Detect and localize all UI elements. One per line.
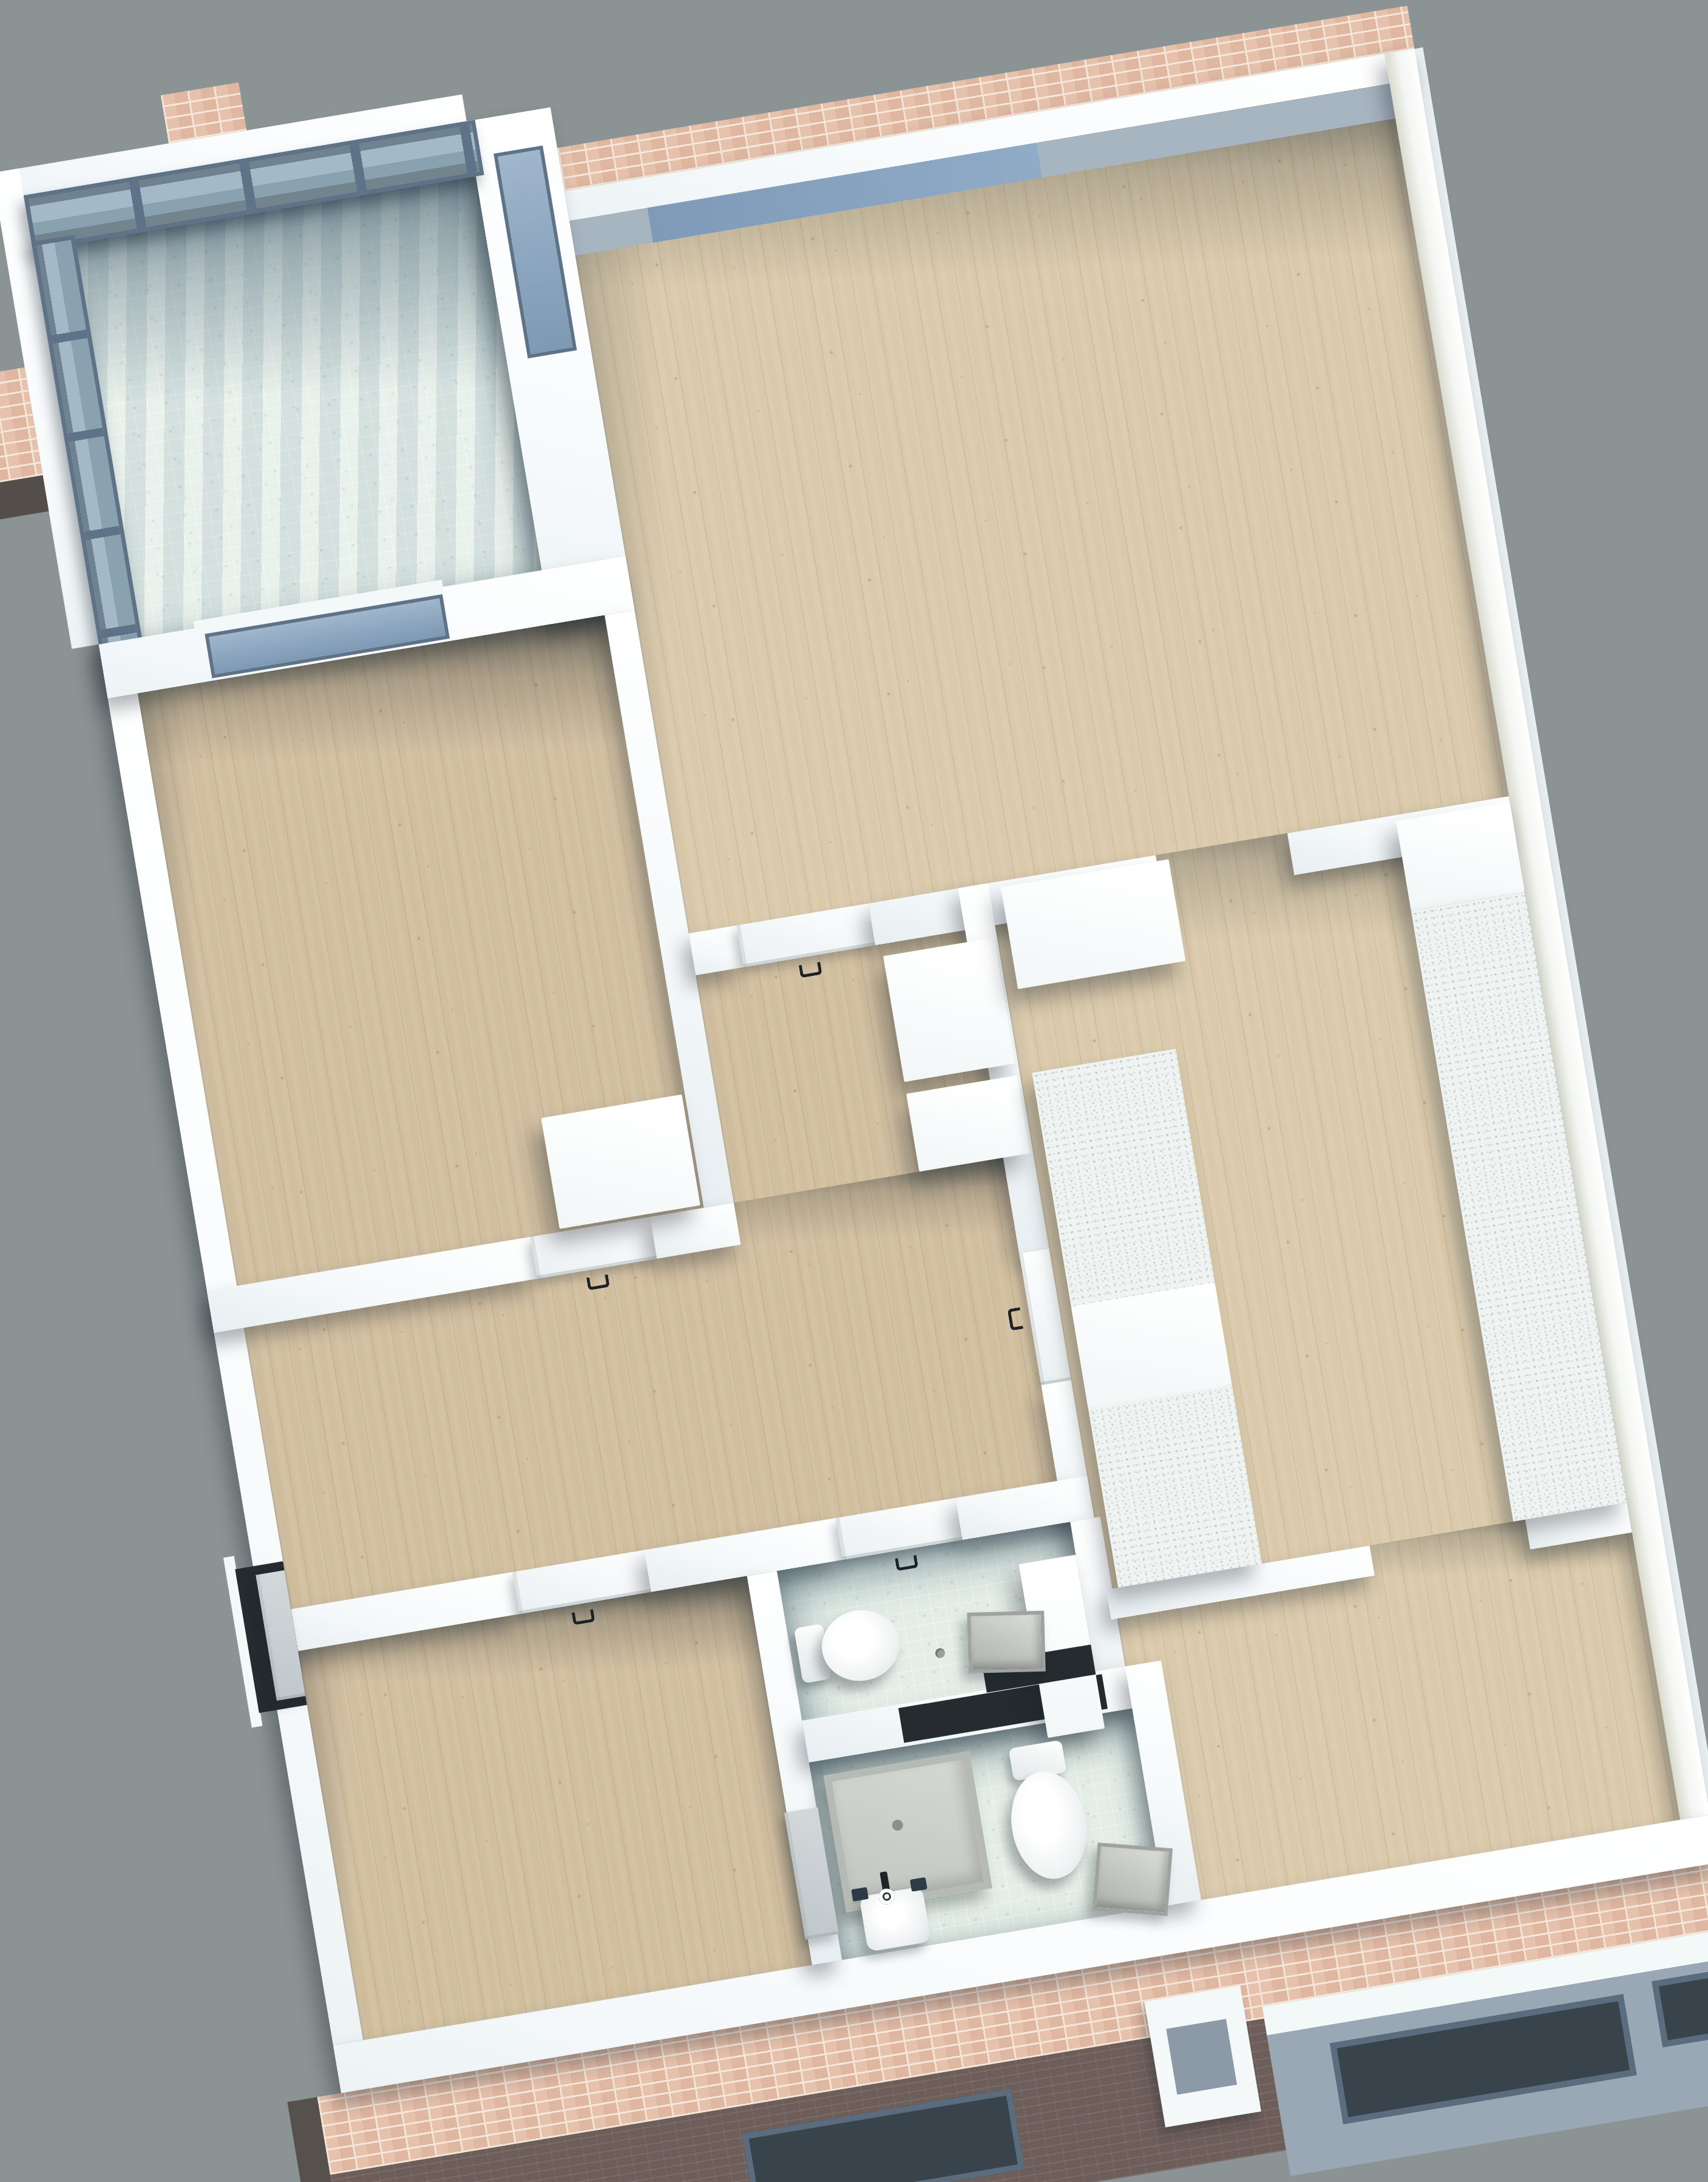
bedroom-bottom-left-floor bbox=[298, 1576, 812, 2040]
faucet-accent-left bbox=[851, 1887, 869, 1902]
faucet-accent-right bbox=[910, 1877, 927, 1892]
wc-gray-tray bbox=[967, 1611, 1046, 1673]
shower-drain bbox=[891, 1819, 904, 1832]
bedroom1-wardrobe bbox=[541, 1094, 700, 1228]
render-canvas: { "meta": { "type": "3d-architectural-fl… bbox=[0, 0, 1708, 2182]
bedroom-bottom-left-shadow bbox=[298, 1576, 812, 2040]
apartment-floor-plan bbox=[38, 49, 1708, 2105]
balcony-pier-dark-face bbox=[0, 475, 49, 521]
wall-living-bottom-a bbox=[689, 926, 744, 975]
facade-jog-window-glass bbox=[1166, 2019, 1237, 2095]
wash-basin bbox=[859, 1886, 931, 1952]
laundry-basket bbox=[1093, 1843, 1173, 1916]
hall-cabinet-1 bbox=[883, 938, 1015, 1082]
facade-jog-window-box bbox=[1144, 1986, 1261, 2128]
